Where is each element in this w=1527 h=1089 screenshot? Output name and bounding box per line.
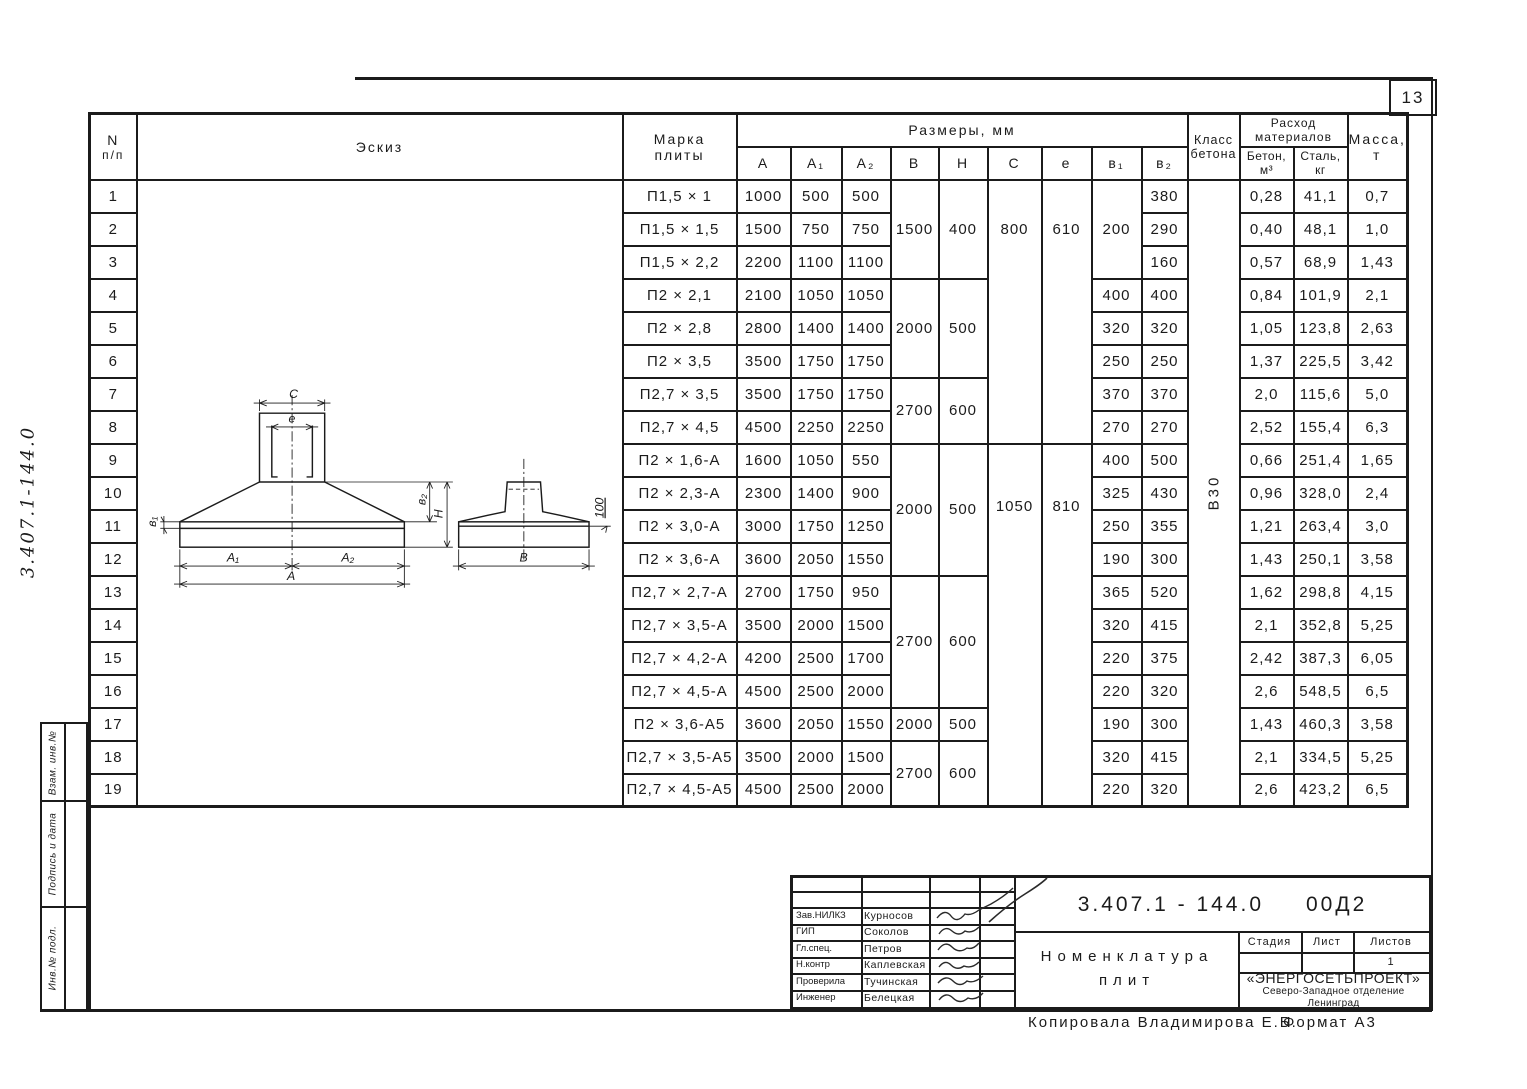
cell-b2: 320 <box>1142 675 1188 708</box>
cell-B: 2700 <box>891 378 939 444</box>
cell-A: 3500 <box>737 378 791 411</box>
cell-e: 610 <box>1042 180 1092 444</box>
cell-A1: 2500 <box>791 774 842 807</box>
cell-beton: 1,43 <box>1240 708 1294 741</box>
cell-b1: 320 <box>1092 609 1142 642</box>
cell-beton: 2,1 <box>1240 741 1294 774</box>
frame-top-line <box>355 77 1433 80</box>
cell-n: 13 <box>90 576 137 609</box>
stamp-name-0: Курносов <box>864 908 914 925</box>
cell-mark: П2,7 × 3,5-А5 <box>623 741 737 774</box>
cell-beton: 0,57 <box>1240 246 1294 279</box>
cell-H: 500 <box>939 708 988 741</box>
cell-A1: 1050 <box>791 279 842 312</box>
stamp-org: «ЭНЕРГОСЕТЬПРОЕКТ» Северо-Западное отдел… <box>1238 972 1429 1007</box>
header-mass: Масса, т <box>1348 114 1408 180</box>
cell-b2: 250 <box>1142 345 1188 378</box>
stamp-name-5: Белецкая <box>864 990 915 1007</box>
cell-massa: 6,5 <box>1348 774 1408 807</box>
cell-A1: 1050 <box>791 444 842 477</box>
cell-b2: 400 <box>1142 279 1188 312</box>
cell-A: 4200 <box>737 642 791 675</box>
header-sketch: Эскиз <box>137 114 623 180</box>
cell-A1: 2500 <box>791 642 842 675</box>
cell-b1: 370 <box>1092 378 1142 411</box>
cell-beton: 0,28 <box>1240 180 1294 213</box>
cell-stal: 101,9 <box>1294 279 1348 312</box>
header-class: Класс бетона <box>1188 114 1240 180</box>
cell-n: 14 <box>90 609 137 642</box>
cell-A1: 1400 <box>791 312 842 345</box>
cell-stal: 123,8 <box>1294 312 1348 345</box>
cell-b2: 320 <box>1142 312 1188 345</box>
cell-n: 16 <box>90 675 137 708</box>
cell-b2: 430 <box>1142 477 1188 510</box>
strip-label-podpis: Подпись и дата <box>48 813 59 896</box>
cell-A1: 1750 <box>791 378 842 411</box>
cell-A: 4500 <box>737 411 791 444</box>
cell-A2: 2000 <box>842 774 891 807</box>
cell-A: 3600 <box>737 543 791 576</box>
cell-b2: 290 <box>1142 213 1188 246</box>
cell-mark: П2,7 × 3,5 <box>623 378 737 411</box>
cell-klass: В30 <box>1188 180 1240 807</box>
strip-label-inv: Инв.№ подл. <box>48 926 59 991</box>
cell-mark: П2,7 × 4,5-А5 <box>623 774 737 807</box>
cell-A2: 1700 <box>842 642 891 675</box>
cell-massa: 3,42 <box>1348 345 1408 378</box>
cell-stal: 68,9 <box>1294 246 1348 279</box>
cell-beton: 2,6 <box>1240 675 1294 708</box>
cell-A: 3500 <box>737 741 791 774</box>
header-dim-h: H <box>939 147 988 180</box>
cell-A: 4500 <box>737 675 791 708</box>
cell-massa: 1,65 <box>1348 444 1408 477</box>
cell-b2: 320 <box>1142 774 1188 807</box>
header-stal-line2: кг <box>1295 163 1347 177</box>
cell-C: 800 <box>988 180 1042 444</box>
cell-massa: 4,15 <box>1348 576 1408 609</box>
cell-b2: 375 <box>1142 642 1188 675</box>
cell-A1: 2250 <box>791 411 842 444</box>
frame-left-line <box>88 800 91 1010</box>
header-mark-line1: Марка <box>624 131 736 147</box>
header-dim-b1: в₁ <box>1092 147 1142 180</box>
cell-n: 5 <box>90 312 137 345</box>
cell-B: 2000 <box>891 708 939 741</box>
format-note: Формат А3 <box>1283 1014 1377 1031</box>
dim-label-c: C <box>289 387 298 401</box>
cell-stal: 263,4 <box>1294 510 1348 543</box>
header-dim-b: B <box>891 147 939 180</box>
copied-by: Копировала Владимирова Е.Б. <box>1028 1014 1298 1031</box>
cell-n: 4 <box>90 279 137 312</box>
cell-mark: П2,7 × 3,5-А <box>623 609 737 642</box>
stamp-role-3: Н.контр <box>796 957 830 974</box>
cell-e: 810 <box>1042 444 1092 807</box>
cell-n: 3 <box>90 246 137 279</box>
cell-b1: 250 <box>1092 345 1142 378</box>
cell-A: 2100 <box>737 279 791 312</box>
cell-B: 2700 <box>891 741 939 807</box>
header-class-line1: Класс <box>1189 133 1239 147</box>
header-beton-line1: Бетон, <box>1241 149 1293 163</box>
cell-A1: 1750 <box>791 345 842 378</box>
cell-b2: 355 <box>1142 510 1188 543</box>
header-mark: Марка плиты <box>623 114 737 180</box>
stamp-role-5: Инженер <box>796 990 836 1007</box>
cell-A1: 1400 <box>791 477 842 510</box>
cell-A1: 2500 <box>791 675 842 708</box>
cell-beton: 0,40 <box>1240 213 1294 246</box>
cell-massa: 5,0 <box>1348 378 1408 411</box>
header-mass-line2: т <box>1349 147 1407 163</box>
cell-A1: 2050 <box>791 708 842 741</box>
cell-n: 6 <box>90 345 137 378</box>
cell-b1: 365 <box>1092 576 1142 609</box>
cell-mark: П2 × 3,5 <box>623 345 737 378</box>
cell-b1: 190 <box>1092 543 1142 576</box>
cell-n: 17 <box>90 708 137 741</box>
cell-massa: 6,05 <box>1348 642 1408 675</box>
stamp-role-2: Гл.спец. <box>796 941 832 958</box>
cell-mark: П2,7 × 4,5 <box>623 411 737 444</box>
cell-stal: 387,3 <box>1294 642 1348 675</box>
cell-beton: 0,96 <box>1240 477 1294 510</box>
cell-A: 3000 <box>737 510 791 543</box>
cell-b2: 415 <box>1142 741 1188 774</box>
cell-A1: 2000 <box>791 741 842 774</box>
header-consumption-line2: материалов <box>1241 130 1347 144</box>
stamp-name-3: Каплевская <box>864 957 926 974</box>
page-number: 13 <box>1402 88 1425 108</box>
stamp-name-4: Тучинская <box>864 974 918 991</box>
cell-n: 8 <box>90 411 137 444</box>
cell-A: 2300 <box>737 477 791 510</box>
cell-n: 7 <box>90 378 137 411</box>
cell-b1: 320 <box>1092 312 1142 345</box>
header-sizes: Размеры, мм <box>737 114 1188 147</box>
page-number-box: 13 <box>1389 79 1437 116</box>
stamp-name-1: Соколов <box>864 924 909 941</box>
stamp-sheet-label: Лист <box>1301 931 1353 952</box>
cell-b2: 520 <box>1142 576 1188 609</box>
stamp-role-1: ГИП <box>796 924 815 941</box>
cell-beton: 1,05 <box>1240 312 1294 345</box>
sketch-drawing: C e в₁ в₂ H A₁ <box>140 362 618 602</box>
cell-A: 1000 <box>737 180 791 213</box>
cell-H: 500 <box>939 444 988 576</box>
cell-H: 400 <box>939 180 988 279</box>
header-beton-line2: м³ <box>1241 163 1293 177</box>
cell-A: 3600 <box>737 708 791 741</box>
frame-right-line <box>1431 79 1433 1011</box>
cell-b1: 400 <box>1092 444 1142 477</box>
cell-stal: 352,8 <box>1294 609 1348 642</box>
cell-A2: 1250 <box>842 510 891 543</box>
cell-n: 12 <box>90 543 137 576</box>
header-stal-line1: Сталь, <box>1295 149 1347 163</box>
header-dim-a: A <box>737 147 791 180</box>
cell-stal: 115,6 <box>1294 378 1348 411</box>
cell-n: 9 <box>90 444 137 477</box>
cell-mark: П2 × 2,1 <box>623 279 737 312</box>
dim-label-b1: в₁ <box>145 516 159 526</box>
header-num-bottom: п/п <box>91 148 136 162</box>
stamp-role-4: Проверила <box>796 974 845 991</box>
header-stal: Сталь, кг <box>1294 147 1348 180</box>
cell-b1: 220 <box>1092 675 1142 708</box>
cell-beton: 1,43 <box>1240 543 1294 576</box>
cell-A2: 1500 <box>842 741 891 774</box>
cell-b2: 270 <box>1142 411 1188 444</box>
dim-label-e: e <box>288 412 295 426</box>
cell-mark: П2 × 3,0-А <box>623 510 737 543</box>
cell-n: 1 <box>90 180 137 213</box>
cell-A: 2200 <box>737 246 791 279</box>
cell-A2: 1750 <box>842 345 891 378</box>
cell-massa: 6,3 <box>1348 411 1408 444</box>
cell-beton: 0,84 <box>1240 279 1294 312</box>
cell-A: 4500 <box>737 774 791 807</box>
cell-mark: П2 × 1,6-А <box>623 444 737 477</box>
header-mark-line2: плиты <box>624 147 736 163</box>
cell-massa: 1,0 <box>1348 213 1408 246</box>
cell-b2: 415 <box>1142 609 1188 642</box>
cell-A1: 2000 <box>791 609 842 642</box>
cell-H: 500 <box>939 279 988 378</box>
dim-label-100: 100 <box>593 498 607 519</box>
cell-b1: 200 <box>1092 180 1142 279</box>
cell-b2: 160 <box>1142 246 1188 279</box>
cell-mark: П1,5 × 2,2 <box>623 246 737 279</box>
header-dim-e: e <box>1042 147 1092 180</box>
cell-beton: 2,42 <box>1240 642 1294 675</box>
cell-A2: 550 <box>842 444 891 477</box>
dim-label-b: B <box>520 551 528 565</box>
cell-B: 1500 <box>891 180 939 279</box>
cell-stal: 334,5 <box>1294 741 1348 774</box>
header-dim-a1: A₁ <box>791 147 842 180</box>
cell-A2: 2000 <box>842 675 891 708</box>
left-strip: Взам. инв.№ Подпись и дата Инв.№ подл. <box>40 722 88 1011</box>
cell-massa: 2,1 <box>1348 279 1408 312</box>
cell-massa: 2,4 <box>1348 477 1408 510</box>
cell-A2: 1550 <box>842 708 891 741</box>
cell-stal: 328,0 <box>1294 477 1348 510</box>
header-num-top: N <box>91 132 136 148</box>
stamp-sheets-label: Листов <box>1353 931 1429 952</box>
cell-A2: 500 <box>842 180 891 213</box>
header-num: N п/п <box>90 114 137 180</box>
cell-beton: 2,1 <box>1240 609 1294 642</box>
cell-massa: 2,63 <box>1348 312 1408 345</box>
cell-A1: 1100 <box>791 246 842 279</box>
stamp-role-0: Зав.НИЛКЗ <box>796 908 846 925</box>
cell-massa: 6,5 <box>1348 675 1408 708</box>
cell-A2: 1750 <box>842 378 891 411</box>
cell-A1: 2050 <box>791 543 842 576</box>
header-dim-b2: в₂ <box>1142 147 1188 180</box>
cell-massa: 3,0 <box>1348 510 1408 543</box>
cell-mark: П1,5 × 1 <box>623 180 737 213</box>
header-dim-c: C <box>988 147 1042 180</box>
cell-mark: П2,7 × 4,2-А <box>623 642 737 675</box>
cell-stal: 548,5 <box>1294 675 1348 708</box>
cell-n: 15 <box>90 642 137 675</box>
cell-A: 2800 <box>737 312 791 345</box>
cell-A1: 750 <box>791 213 842 246</box>
dim-label-a2: A₂ <box>340 551 354 565</box>
stamp-stage-label: Стадия <box>1238 931 1301 952</box>
cell-massa: 3,58 <box>1348 708 1408 741</box>
title-stamp: Зав.НИЛКЗ Курносов ГИП Соколов Гл.спец. … <box>790 875 1432 1010</box>
cell-beton: 0,66 <box>1240 444 1294 477</box>
cell-massa: 5,25 <box>1348 609 1408 642</box>
cell-b1: 400 <box>1092 279 1142 312</box>
cell-b1: 325 <box>1092 477 1142 510</box>
cell-A: 3500 <box>737 345 791 378</box>
cell-A1: 500 <box>791 180 842 213</box>
header-dim-a2: A₂ <box>842 147 891 180</box>
dim-label-a1: A₁ <box>226 551 239 565</box>
drawing-sheet: 13 N п/п Эскиз Марка плиты Размеры <box>0 0 1527 1089</box>
cell-A2: 2250 <box>842 411 891 444</box>
cell-mark: П2,7 × 4,5-А <box>623 675 737 708</box>
cell-stal: 225,5 <box>1294 345 1348 378</box>
cell-A: 1500 <box>737 213 791 246</box>
cell-massa: 0,7 <box>1348 180 1408 213</box>
cell-stal: 251,4 <box>1294 444 1348 477</box>
cell-A2: 1050 <box>842 279 891 312</box>
cell-mark: П2 × 2,8 <box>623 312 737 345</box>
cell-massa: 1,43 <box>1348 246 1408 279</box>
cell-stal: 298,8 <box>1294 576 1348 609</box>
cell-n: 10 <box>90 477 137 510</box>
cell-C: 1050 <box>988 444 1042 807</box>
cell-stal: 460,3 <box>1294 708 1348 741</box>
dim-label-b2: в₂ <box>414 494 428 505</box>
cell-beton: 2,52 <box>1240 411 1294 444</box>
cell-b1: 270 <box>1092 411 1142 444</box>
cell-b1: 190 <box>1092 708 1142 741</box>
header-consumption: Расход материалов <box>1240 114 1348 147</box>
stamp-title: Номенклатура плит <box>1016 931 1238 1007</box>
dim-label-h: H <box>432 509 446 518</box>
cell-B: 2000 <box>891 279 939 378</box>
cell-mark: П2 × 3,6-А <box>623 543 737 576</box>
cell-b1: 250 <box>1092 510 1142 543</box>
dim-label-a: A <box>286 569 295 583</box>
cell-A2: 1500 <box>842 609 891 642</box>
cell-A2: 750 <box>842 213 891 246</box>
cell-b1: 320 <box>1092 741 1142 774</box>
cell-A2: 950 <box>842 576 891 609</box>
cell-B: 2700 <box>891 576 939 708</box>
cell-beton: 1,21 <box>1240 510 1294 543</box>
header-beton: Бетон, м³ <box>1240 147 1294 180</box>
cell-mark: П2 × 3,6-А5 <box>623 708 737 741</box>
cell-b2: 370 <box>1142 378 1188 411</box>
cell-mark: П2,7 × 2,7-А <box>623 576 737 609</box>
cell-beton: 1,37 <box>1240 345 1294 378</box>
cell-stal: 41,1 <box>1294 180 1348 213</box>
cell-stal: 423,2 <box>1294 774 1348 807</box>
cell-mark: П1,5 × 1,5 <box>623 213 737 246</box>
cell-A1: 1750 <box>791 510 842 543</box>
cell-beton: 1,62 <box>1240 576 1294 609</box>
side-doc-number: 3.407.1-144.0 <box>8 372 48 632</box>
cell-A: 2700 <box>737 576 791 609</box>
cell-b2: 500 <box>1142 444 1188 477</box>
cell-massa: 5,25 <box>1348 741 1408 774</box>
cell-A2: 1400 <box>842 312 891 345</box>
cell-b1: 220 <box>1092 774 1142 807</box>
cell-A2: 900 <box>842 477 891 510</box>
cell-mark: П2 × 2,3-А <box>623 477 737 510</box>
cell-B: 2000 <box>891 444 939 576</box>
cell-b2: 300 <box>1142 708 1188 741</box>
cell-beton: 2,0 <box>1240 378 1294 411</box>
cell-beton: 2,6 <box>1240 774 1294 807</box>
cell-b2: 300 <box>1142 543 1188 576</box>
cell-massa: 3,58 <box>1348 543 1408 576</box>
cell-n: 2 <box>90 213 137 246</box>
cell-stal: 48,1 <box>1294 213 1348 246</box>
header-mass-line1: Масса, <box>1349 131 1407 147</box>
cell-A: 1600 <box>737 444 791 477</box>
cell-H: 600 <box>939 741 988 807</box>
header-consumption-line1: Расход <box>1241 116 1347 130</box>
header-class-line2: бетона <box>1189 147 1239 161</box>
stamp-name-2: Петров <box>864 941 902 958</box>
cell-n: 18 <box>90 741 137 774</box>
cell-stal: 250,1 <box>1294 543 1348 576</box>
strip-label-vzam: Взам. инв.№ <box>48 731 59 796</box>
cell-H: 600 <box>939 576 988 708</box>
cell-b2: 380 <box>1142 180 1188 213</box>
cell-A2: 1550 <box>842 543 891 576</box>
stamp-doc-number: 3.407.1 - 144.0 00Д2 <box>1016 878 1429 931</box>
cell-A1: 1750 <box>791 576 842 609</box>
cell-A2: 1100 <box>842 246 891 279</box>
stamp-doc-code: 00Д2 <box>1306 893 1367 917</box>
cell-n: 19 <box>90 774 137 807</box>
cell-A: 3500 <box>737 609 791 642</box>
cell-n: 11 <box>90 510 137 543</box>
cell-b1: 220 <box>1092 642 1142 675</box>
cell-H: 600 <box>939 378 988 444</box>
cell-stal: 155,4 <box>1294 411 1348 444</box>
